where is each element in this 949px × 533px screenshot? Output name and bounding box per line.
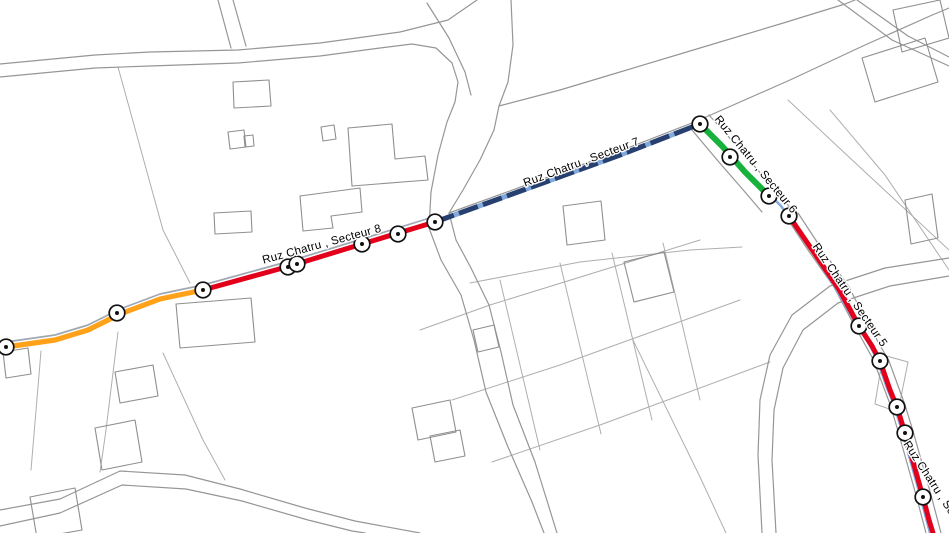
map-viewport[interactable]: Ruz Chatru , Secteur 8Ruz Chatru , Secte… bbox=[0, 0, 949, 533]
parcel-line bbox=[31, 351, 41, 470]
building bbox=[905, 194, 938, 244]
road-north-branch-a bbox=[218, 0, 231, 48]
parcel-line bbox=[633, 340, 726, 533]
parcel-line bbox=[118, 67, 190, 283]
route-node-dot bbox=[921, 495, 925, 499]
building bbox=[862, 38, 938, 102]
road-top-vertical-right bbox=[499, 0, 855, 106]
road-north-branch-b bbox=[233, 0, 246, 46]
route-node-dot bbox=[201, 288, 205, 292]
building bbox=[473, 325, 499, 352]
street-label-secteur-7: Ruz Chatru , Secteur 7 bbox=[522, 136, 641, 190]
route-node-dot bbox=[728, 155, 732, 159]
route-node-dot bbox=[903, 431, 907, 435]
network-routes bbox=[6, 124, 933, 533]
route-node-dot bbox=[878, 359, 882, 363]
building bbox=[228, 130, 246, 149]
junction-island bbox=[427, 3, 471, 95]
route-node-dot bbox=[360, 242, 364, 246]
street-label-secteur-5-south-text: Ruz Chatru , Secteur 5 bbox=[900, 439, 949, 533]
underlay-east-blue bbox=[786, 214, 930, 533]
road-west-lower-south bbox=[0, 44, 544, 533]
street-label-secteur-5: Ruz Chatru , Secteur 5 bbox=[810, 241, 889, 349]
street-label-secteur-5-text: Ruz Chatru , Secteur 5 bbox=[810, 241, 889, 349]
map-canvas[interactable]: Ruz Chatru , Secteur 8Ruz Chatru , Secte… bbox=[0, 0, 949, 533]
building bbox=[321, 125, 336, 141]
lane-east-left bbox=[783, 212, 926, 533]
street-labels: Ruz Chatru , Secteur 8Ruz Chatru , Secte… bbox=[261, 114, 949, 533]
route-node-dot bbox=[767, 194, 771, 198]
road-south-east-edge bbox=[449, 213, 557, 533]
building bbox=[115, 365, 158, 403]
route-node-dot bbox=[895, 405, 899, 409]
building bbox=[430, 430, 465, 462]
building bbox=[214, 211, 252, 234]
parcel-line bbox=[612, 253, 652, 420]
building bbox=[233, 80, 271, 108]
parcel-line bbox=[788, 100, 949, 250]
building bbox=[176, 298, 255, 348]
street-label-secteur-6-text: Ruz Chatru , Secteur 6 bbox=[712, 114, 799, 216]
parcel-line bbox=[560, 263, 601, 434]
parcel-line bbox=[830, 110, 949, 270]
street-label-secteur-5-south: Ruz Chatru , Secteur 5 bbox=[900, 439, 949, 533]
road-bottom-a bbox=[0, 471, 420, 533]
building bbox=[348, 124, 428, 186]
road-west-upper bbox=[0, 0, 477, 64]
lane-green-left bbox=[692, 130, 762, 212]
route-node-dot bbox=[115, 311, 119, 315]
parcel-line bbox=[163, 353, 225, 480]
street-label-secteur-6: Ruz Chatru , Secteur 6 bbox=[712, 114, 799, 216]
parcel-line bbox=[470, 247, 742, 283]
basemap-roads bbox=[0, 0, 949, 533]
route-node-dot bbox=[433, 220, 437, 224]
building bbox=[563, 201, 605, 245]
parcel-line bbox=[100, 332, 118, 472]
building bbox=[30, 488, 82, 533]
parcel-line bbox=[492, 362, 770, 462]
route-node-dot bbox=[295, 262, 299, 266]
route-node-dot bbox=[857, 324, 861, 328]
building bbox=[412, 400, 456, 440]
route-node-dot bbox=[698, 122, 702, 126]
route-node-dot bbox=[396, 232, 400, 236]
building bbox=[95, 420, 142, 470]
basemap-buildings bbox=[3, 0, 949, 533]
building bbox=[300, 188, 362, 231]
route-casings bbox=[6, 122, 930, 533]
street-label-secteur-7-text: Ruz Chatru , Secteur 7 bbox=[522, 136, 641, 190]
route-node-dot bbox=[4, 345, 8, 349]
